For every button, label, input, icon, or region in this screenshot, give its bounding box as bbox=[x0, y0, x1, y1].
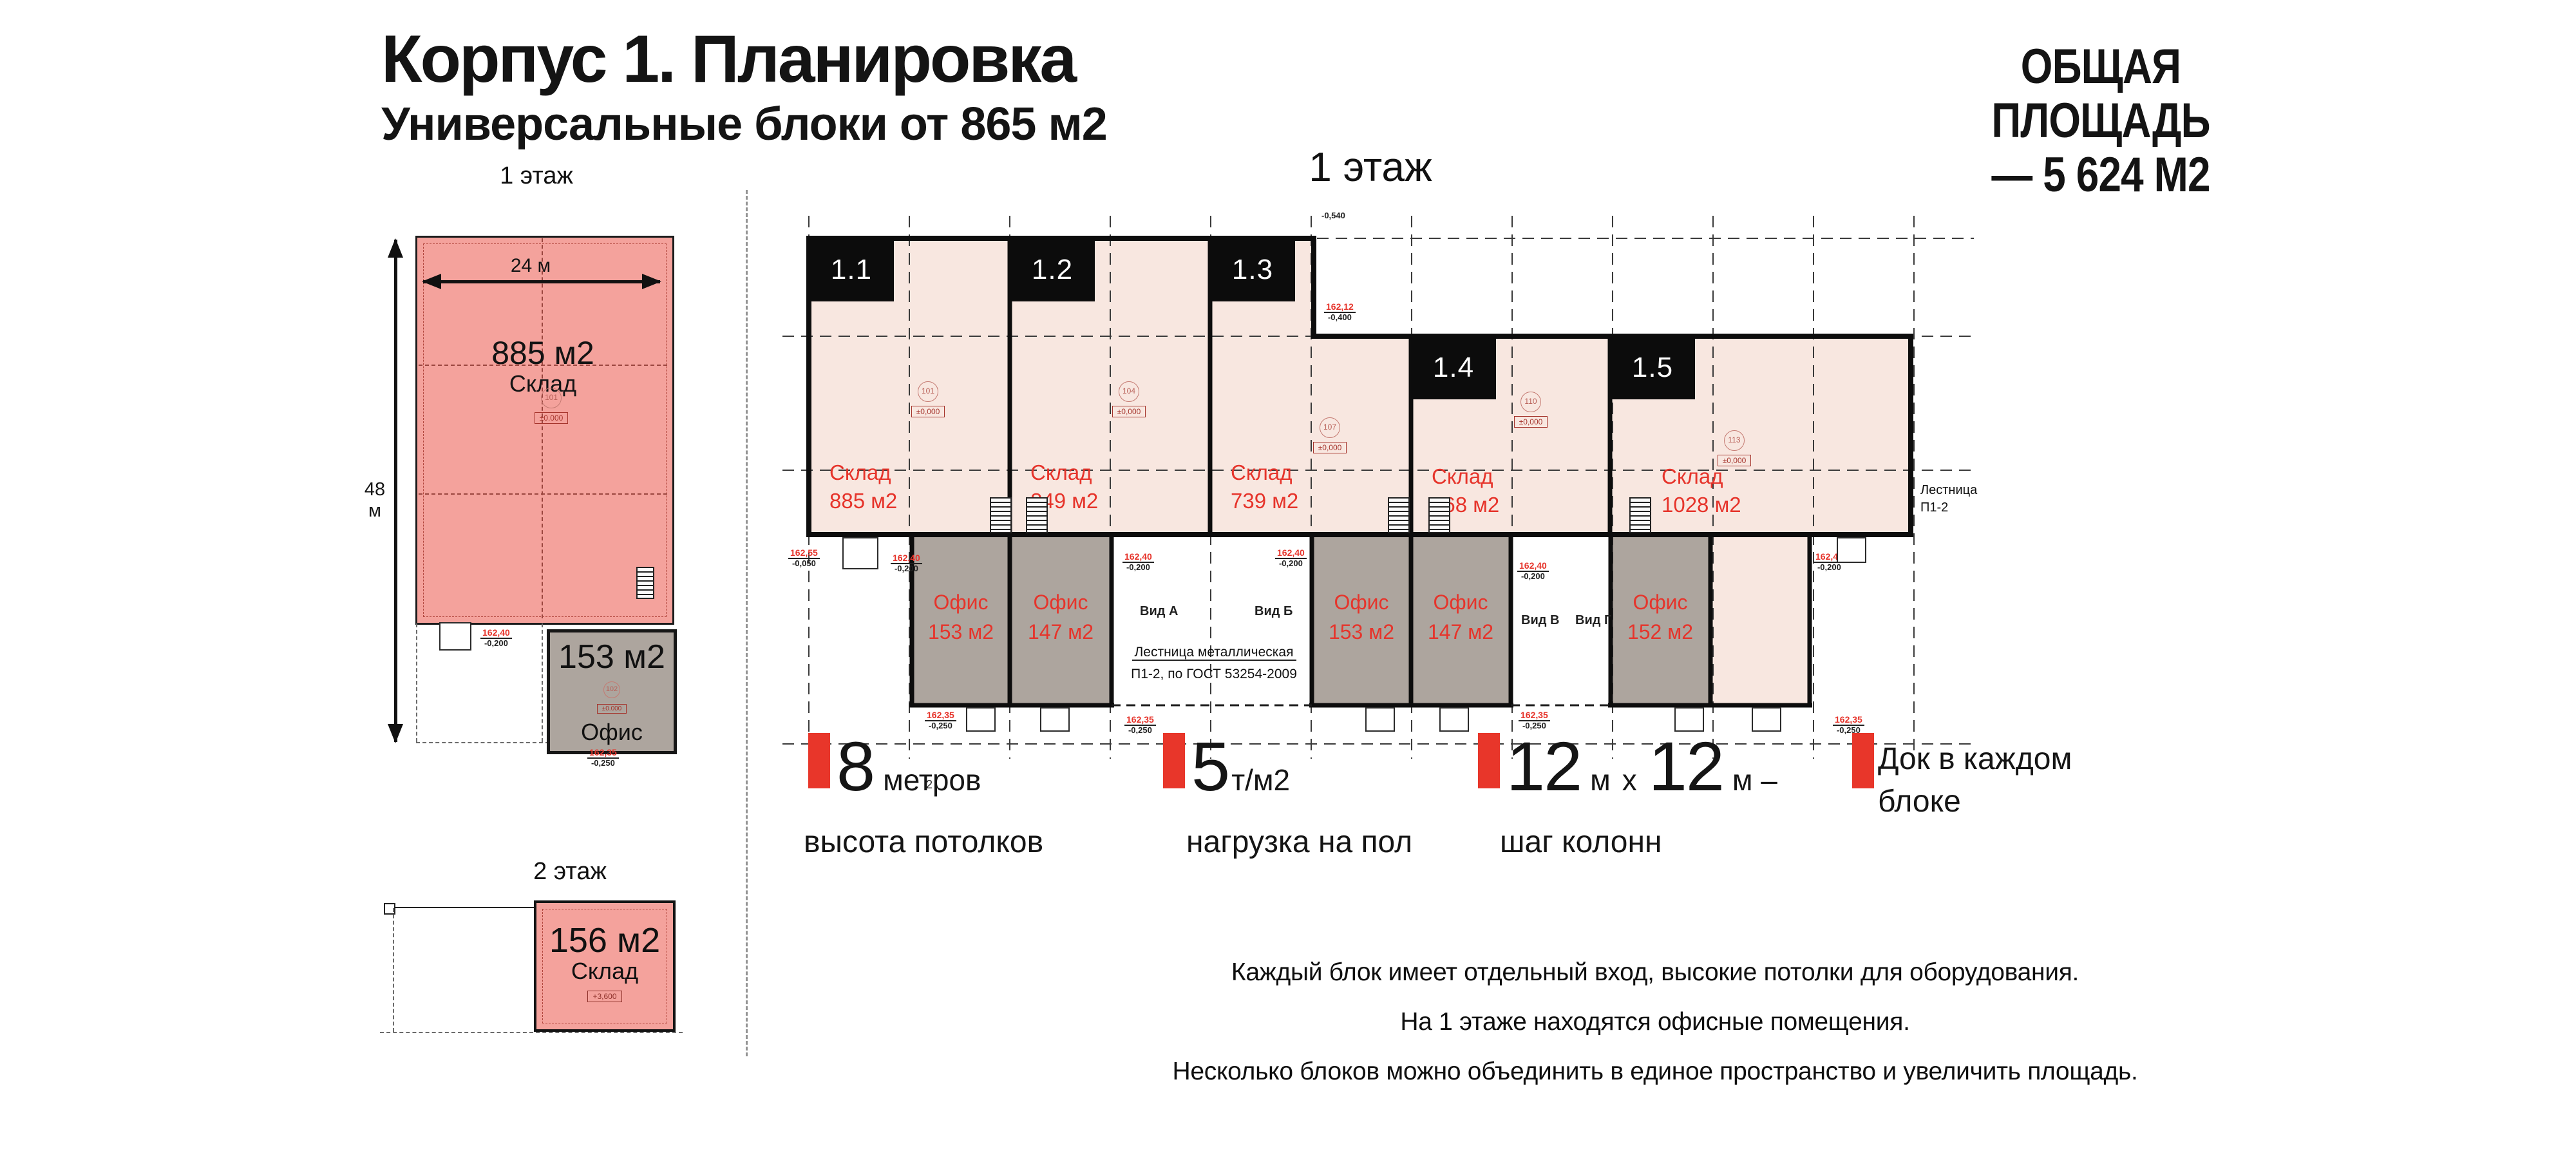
office-type: Офис bbox=[1006, 587, 1115, 617]
room-number-circle: 110 bbox=[1520, 392, 1541, 412]
axis-dash-inset bbox=[423, 243, 667, 617]
main-plan: Лестница металлическая П1-2, по ГОСТ 532… bbox=[773, 206, 1984, 799]
elevation-bottom: -0,050 bbox=[788, 559, 820, 569]
grid-axis bbox=[393, 908, 394, 1032]
warehouse-area-fill bbox=[415, 236, 674, 625]
warehouse-type: Склад bbox=[536, 958, 673, 984]
elevation-top: 162,40 bbox=[891, 553, 922, 564]
elevation-bottom: -0,200 bbox=[1275, 559, 1307, 569]
warehouse-type: Склад bbox=[1662, 462, 1741, 491]
side-stair-note-line1: Лестница bbox=[1920, 482, 1977, 499]
room-number-circle: 104 bbox=[1119, 381, 1139, 402]
elevation-mark: 162,35-0,250 bbox=[925, 710, 956, 731]
feature-bullet-icon bbox=[1478, 733, 1500, 788]
feature-number: 12 bbox=[1506, 733, 1581, 800]
stairs-icon bbox=[1026, 497, 1048, 533]
office-caption: Офис153 м2 bbox=[906, 587, 1016, 647]
block-label-1.1: 1.1 bbox=[809, 238, 894, 301]
footer-note-line: Несколько блоков можно объединить в един… bbox=[979, 1058, 2331, 1086]
door-icon bbox=[842, 537, 878, 569]
feature-value: 5т/м2 bbox=[1191, 733, 1290, 800]
room-number-circle: 101 bbox=[541, 388, 562, 408]
level-mark: ±0,000 bbox=[1313, 442, 1347, 453]
feature-caption: нагрузка на пол bbox=[1186, 824, 1412, 860]
office-area-value: 153 м2 bbox=[1307, 617, 1416, 647]
wall-line bbox=[394, 907, 534, 908]
stair-note-line1: Лестница металлическая bbox=[1132, 645, 1296, 661]
elevation-bottom: -0,200 bbox=[891, 564, 922, 574]
level-mark: ±0,000 bbox=[1112, 406, 1146, 417]
elevation-bottom: -0,250 bbox=[1124, 726, 1156, 736]
room-number-circle: 113 bbox=[1724, 430, 1745, 451]
side-stair-note-line2: П1-2 bbox=[1920, 499, 1977, 517]
block-label-1.4: 1.4 bbox=[1411, 336, 1496, 399]
feature-unit: метров bbox=[883, 763, 981, 797]
office-area-value: 147 м2 bbox=[1406, 617, 1515, 647]
feature-caption: шаг колонн bbox=[1500, 824, 1662, 860]
elevation-bottom: -0,200 bbox=[1814, 563, 1845, 573]
feature-number: 12 bbox=[1649, 733, 1723, 800]
level-mark: +3,600 bbox=[587, 991, 621, 1002]
stair-note-line2: П1-2, по ГОСТ 53254-2009 bbox=[1098, 663, 1330, 685]
office-type: Офис bbox=[581, 719, 643, 746]
elevation-bottom: -0,200 bbox=[1517, 572, 1549, 582]
elevation-mark: 162,40-0,200 bbox=[891, 553, 922, 574]
warehouse-type: Склад bbox=[1231, 459, 1298, 487]
floor1-mini-plan: 24 м 885 м2 Склад 101 ±0.000 153 м2 102 … bbox=[361, 219, 721, 795]
stairs-icon bbox=[1388, 497, 1410, 533]
block-label-1.3: 1.3 bbox=[1210, 238, 1295, 301]
floor2-mini-label: 2 этаж bbox=[499, 858, 641, 886]
view-label: Вид Г bbox=[1575, 613, 1611, 628]
feature-caption: высота потолков bbox=[804, 824, 1043, 860]
feature-caption-line1: Док в каждом bbox=[1878, 738, 2072, 781]
room-number-circle: 102 bbox=[603, 681, 620, 698]
feature-bullet-icon bbox=[1163, 733, 1185, 788]
office-caption: Офис147 м2 bbox=[1406, 587, 1515, 647]
total-area: ОБЩАЯ ПЛОЩАДЬ — 5 624 М2 bbox=[1949, 40, 2252, 202]
door-icon bbox=[966, 707, 996, 732]
grid-axis bbox=[542, 623, 543, 742]
dim-height-label: 48 м bbox=[357, 479, 393, 522]
page-subtitle: Универсальные блоки от 865 м2 bbox=[381, 98, 1107, 151]
floor2-mini-plan: 156 м2 Склад +3,600 bbox=[361, 895, 721, 1069]
warehouse-caption: Склад739 м2 bbox=[1231, 459, 1298, 515]
elevation-mark: 162,40-0,200 bbox=[1275, 547, 1307, 569]
floor1-mini-label: 1 этаж bbox=[466, 162, 607, 190]
elevation-mark: 162,35 -0,250 bbox=[587, 747, 619, 768]
elevation-mark: 162,40-0,200 bbox=[1122, 551, 1154, 573]
room-mark: 104±0,000 bbox=[1100, 381, 1158, 417]
feature-value: 12мх12м – bbox=[1506, 733, 1777, 800]
elevation-top: 162,35 bbox=[1124, 714, 1156, 726]
feature-unit: м – bbox=[1732, 763, 1777, 797]
office-area-value: 153 м2 bbox=[906, 617, 1016, 647]
elevation-top: 162,35 bbox=[1519, 710, 1550, 721]
room-mark: 101 ±0.000 bbox=[526, 388, 577, 424]
section-divider bbox=[746, 190, 748, 1056]
level-mark: ±0,000 bbox=[1514, 416, 1548, 428]
side-stair-note: Лестница П1-2 bbox=[1920, 482, 1977, 517]
door-icon bbox=[1837, 537, 1866, 563]
office-area-value: 152 м2 bbox=[1605, 617, 1715, 647]
office-caption: Офис153 м2 bbox=[1307, 587, 1416, 647]
elevation-mark: 162,40-0,200 bbox=[1517, 560, 1549, 582]
grid-axis bbox=[542, 238, 543, 618]
footer-note-line: На 1 этаже находятся офисные помещения. bbox=[979, 1008, 2331, 1036]
room-number-circle: 101 bbox=[918, 381, 938, 402]
room-mark: 113±0,000 bbox=[1705, 430, 1763, 466]
elevation-top: 162,55 bbox=[788, 547, 820, 559]
elevation-bottom: -0,400 bbox=[1324, 313, 1356, 323]
level-mark: ±0.000 bbox=[597, 704, 627, 714]
elevation-mark: 162,12-0,400 bbox=[1324, 301, 1356, 323]
room-mark: 110±0,000 bbox=[1502, 392, 1560, 428]
elevation-mark: 162,40 -0,200 bbox=[480, 627, 512, 649]
warehouse-area-fill: 156 м2 Склад +3,600 bbox=[534, 900, 676, 1032]
office-area-value: 147 м2 bbox=[1006, 617, 1115, 647]
level-mark: ±0,000 bbox=[1718, 455, 1752, 466]
grid-axis bbox=[419, 493, 667, 495]
warehouse-caption: 156 м2 Склад +3,600 bbox=[536, 922, 673, 1002]
office-type: Офис bbox=[1307, 587, 1416, 617]
stair-note: Лестница металлическая П1-2, по ГОСТ 532… bbox=[1098, 642, 1330, 685]
dimension-arrow-24m bbox=[423, 280, 660, 283]
block-label-1.2: 1.2 bbox=[1010, 238, 1095, 301]
feature-bullet-icon bbox=[1852, 733, 1874, 788]
warehouse-caption: Склад885 м2 bbox=[829, 459, 897, 515]
elevation-top: 162,12 bbox=[1324, 301, 1356, 313]
office-type: Офис bbox=[906, 587, 1016, 617]
feature-caption: Док в каждомблоке bbox=[1878, 738, 2072, 823]
office-type: Офис bbox=[1406, 587, 1515, 617]
grid-axis bbox=[380, 1032, 683, 1033]
feature-number: 5 bbox=[1191, 733, 1229, 800]
elevation-mark: 162,55-0,050 bbox=[788, 547, 820, 569]
warehouse-area-value: 885 м2 bbox=[446, 335, 639, 371]
stairs-icon bbox=[1428, 497, 1450, 533]
elevation-bottom: -0,250 bbox=[925, 721, 956, 731]
door-icon bbox=[1365, 707, 1395, 732]
door-icon bbox=[1752, 707, 1781, 732]
total-area-caption: ОБЩАЯ ПЛОЩАДЬ bbox=[1949, 40, 2252, 148]
door-icon bbox=[1439, 707, 1469, 732]
elevation-bottom: -0,200 bbox=[480, 639, 512, 649]
door-icon bbox=[1040, 707, 1070, 732]
dim-width-label: 24 м bbox=[482, 255, 579, 277]
feature-number: 8 bbox=[837, 733, 874, 800]
warehouse-area-value: 156 м2 bbox=[536, 922, 673, 958]
room-number-circle: 107 bbox=[1320, 417, 1340, 438]
elevation-bottom: -0,250 bbox=[587, 759, 619, 768]
office-caption: Офис152 м2 bbox=[1605, 587, 1715, 647]
elevation-bottom: -0,540 bbox=[1321, 211, 1345, 221]
block-label-1.5: 1.5 bbox=[1610, 336, 1695, 399]
door-icon bbox=[439, 622, 471, 651]
warehouse-type: Склад bbox=[1432, 462, 1499, 491]
view-label: Вид А bbox=[1140, 604, 1178, 619]
stairs-icon bbox=[990, 497, 1012, 533]
elevation-bottom: -0,200 bbox=[1122, 563, 1154, 573]
elevation-top: 162,35 bbox=[1833, 714, 1864, 726]
feature-bullet-icon bbox=[808, 733, 830, 788]
elevation-mark: -0,540 bbox=[1321, 211, 1345, 221]
warehouse-area-value: 739 м2 bbox=[1231, 487, 1298, 515]
elevation-mark: 162,35-0,250 bbox=[1124, 714, 1156, 736]
room-mark: 101±0,000 bbox=[899, 381, 957, 417]
level-mark: ±0.000 bbox=[535, 412, 569, 424]
warehouse-caption: Склад1028 м2 bbox=[1662, 462, 1741, 519]
warehouse-area-value: 1028 м2 bbox=[1662, 491, 1741, 519]
view-label: Вид Б bbox=[1255, 604, 1293, 619]
office-area: 153 м2 102 ±0.000 Офис bbox=[547, 629, 677, 754]
feature-mid: х bbox=[1622, 763, 1637, 797]
page-title: Корпус 1. Планировка bbox=[381, 26, 1075, 93]
elevation-top: 162,40 bbox=[1275, 547, 1307, 559]
stairs-icon bbox=[1629, 497, 1651, 533]
elevation-top: 162,35 bbox=[925, 710, 956, 721]
room-mark: 107±0,000 bbox=[1301, 417, 1359, 453]
elevation-top: 162,40 bbox=[480, 627, 512, 639]
feature-value: 8метров bbox=[837, 733, 981, 800]
main-plan-title: 1 этаж bbox=[1293, 143, 1448, 191]
office-caption: Офис147 м2 bbox=[1006, 587, 1115, 647]
feature-unit: м bbox=[1590, 763, 1611, 797]
elevation-top: 162,40 bbox=[1122, 551, 1154, 563]
warehouse-type: Склад bbox=[829, 459, 897, 487]
view-label: Вид В bbox=[1521, 613, 1559, 628]
elevation-top: 162,35 bbox=[587, 747, 619, 759]
office-type: Офис bbox=[1605, 587, 1715, 617]
warehouse-type: Склад bbox=[1030, 459, 1098, 487]
grid-axis bbox=[416, 623, 417, 742]
feature-caption-line2: блоке bbox=[1878, 781, 2072, 823]
stairs-icon bbox=[636, 567, 654, 599]
feature-unit: т/м2 bbox=[1231, 763, 1290, 797]
office-area-value: 153 м2 bbox=[558, 638, 665, 676]
dimension-arrow-48m bbox=[394, 240, 397, 742]
footer-notes: Каждый блок имеет отдельный вход, высоки… bbox=[979, 958, 2331, 1107]
warehouse-area-value: 885 м2 bbox=[829, 487, 897, 515]
total-area-value: — 5 624 М2 bbox=[1949, 148, 2252, 202]
footer-note-line: Каждый блок имеет отдельный вход, высоки… bbox=[979, 958, 2331, 987]
level-mark: ±0,000 bbox=[911, 406, 945, 417]
elevation-top: 162,40 bbox=[1517, 560, 1549, 572]
